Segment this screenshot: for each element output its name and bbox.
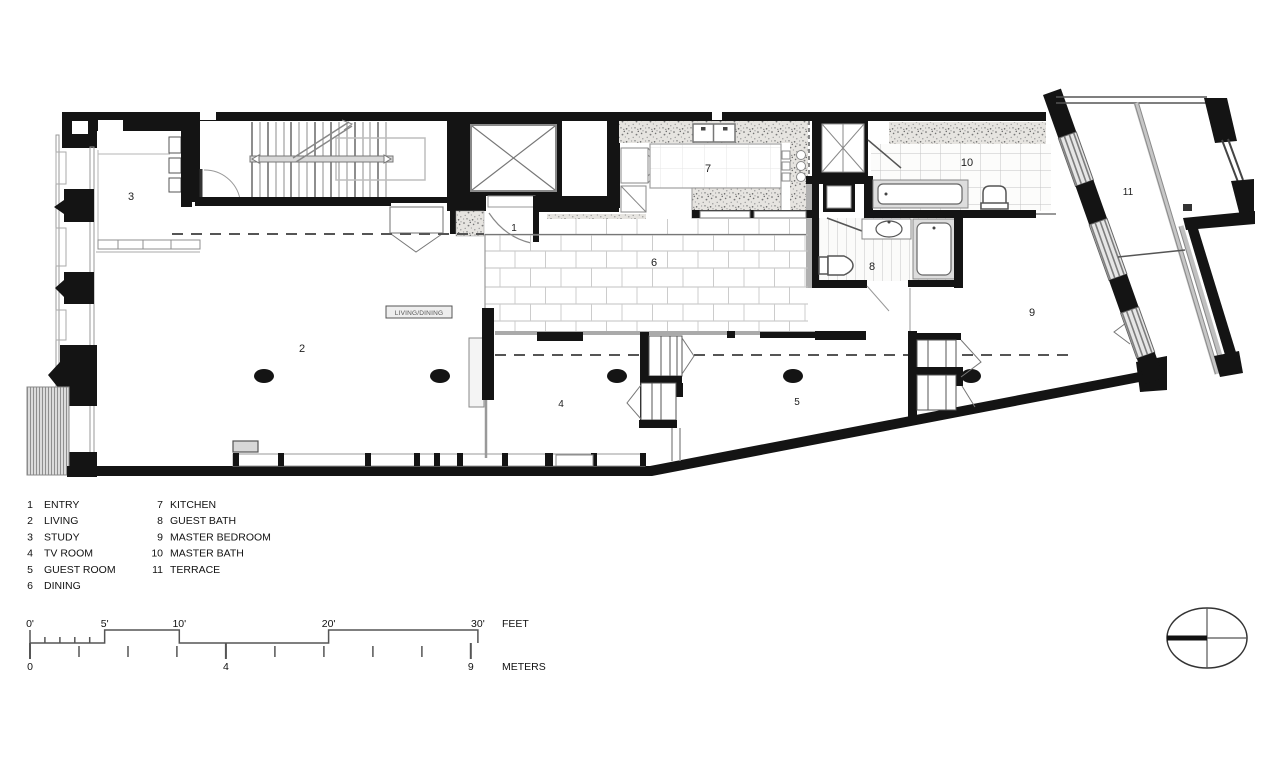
svg-text:ENTRY: ENTRY: [44, 499, 79, 511]
svg-text:6: 6: [27, 580, 33, 592]
svg-text:4: 4: [558, 399, 564, 410]
svg-text:GUEST ROOM: GUEST ROOM: [44, 564, 116, 576]
svg-text:0: 0: [27, 661, 33, 673]
svg-text:1: 1: [511, 223, 517, 234]
svg-text:KITCHEN: KITCHEN: [170, 499, 216, 511]
svg-text:20': 20': [322, 618, 336, 630]
svg-text:3: 3: [27, 531, 33, 543]
svg-text:11: 11: [1123, 187, 1134, 198]
svg-text:30': 30': [471, 618, 485, 630]
svg-text:8: 8: [869, 261, 875, 273]
svg-text:GUEST BATH: GUEST BATH: [170, 515, 236, 527]
svg-text:METERS: METERS: [502, 661, 546, 673]
svg-text:9: 9: [468, 661, 474, 673]
svg-text:6: 6: [651, 257, 657, 269]
svg-text:10': 10': [172, 618, 186, 630]
svg-text:TV ROOM: TV ROOM: [44, 548, 93, 560]
svg-text:4: 4: [223, 661, 229, 673]
svg-text:MASTER BEDROOM: MASTER BEDROOM: [170, 531, 271, 543]
svg-text:4: 4: [27, 548, 33, 560]
svg-text:9: 9: [157, 531, 163, 543]
svg-text:3: 3: [128, 191, 134, 203]
svg-text:7: 7: [705, 163, 711, 175]
svg-text:2: 2: [299, 343, 305, 355]
svg-text:7: 7: [157, 499, 163, 511]
svg-text:5: 5: [794, 397, 800, 408]
svg-text:STUDY: STUDY: [44, 531, 80, 543]
svg-text:LIVING: LIVING: [44, 515, 78, 527]
svg-text:8: 8: [157, 515, 163, 527]
svg-text:10: 10: [961, 157, 973, 169]
svg-text:11: 11: [152, 564, 163, 576]
svg-text:MASTER BATH: MASTER BATH: [170, 548, 244, 560]
svg-text:LIVING/DINING: LIVING/DINING: [395, 310, 443, 317]
svg-text:TERRACE: TERRACE: [170, 564, 220, 576]
svg-text:5: 5: [27, 564, 33, 576]
svg-text:9: 9: [1029, 307, 1035, 319]
svg-text:10: 10: [151, 548, 163, 560]
svg-text:DINING: DINING: [44, 580, 81, 592]
svg-text:FEET: FEET: [502, 618, 529, 630]
svg-text:2: 2: [27, 515, 33, 527]
svg-text:5': 5': [101, 618, 109, 630]
svg-text:1: 1: [27, 499, 33, 511]
svg-text:0': 0': [26, 618, 34, 630]
